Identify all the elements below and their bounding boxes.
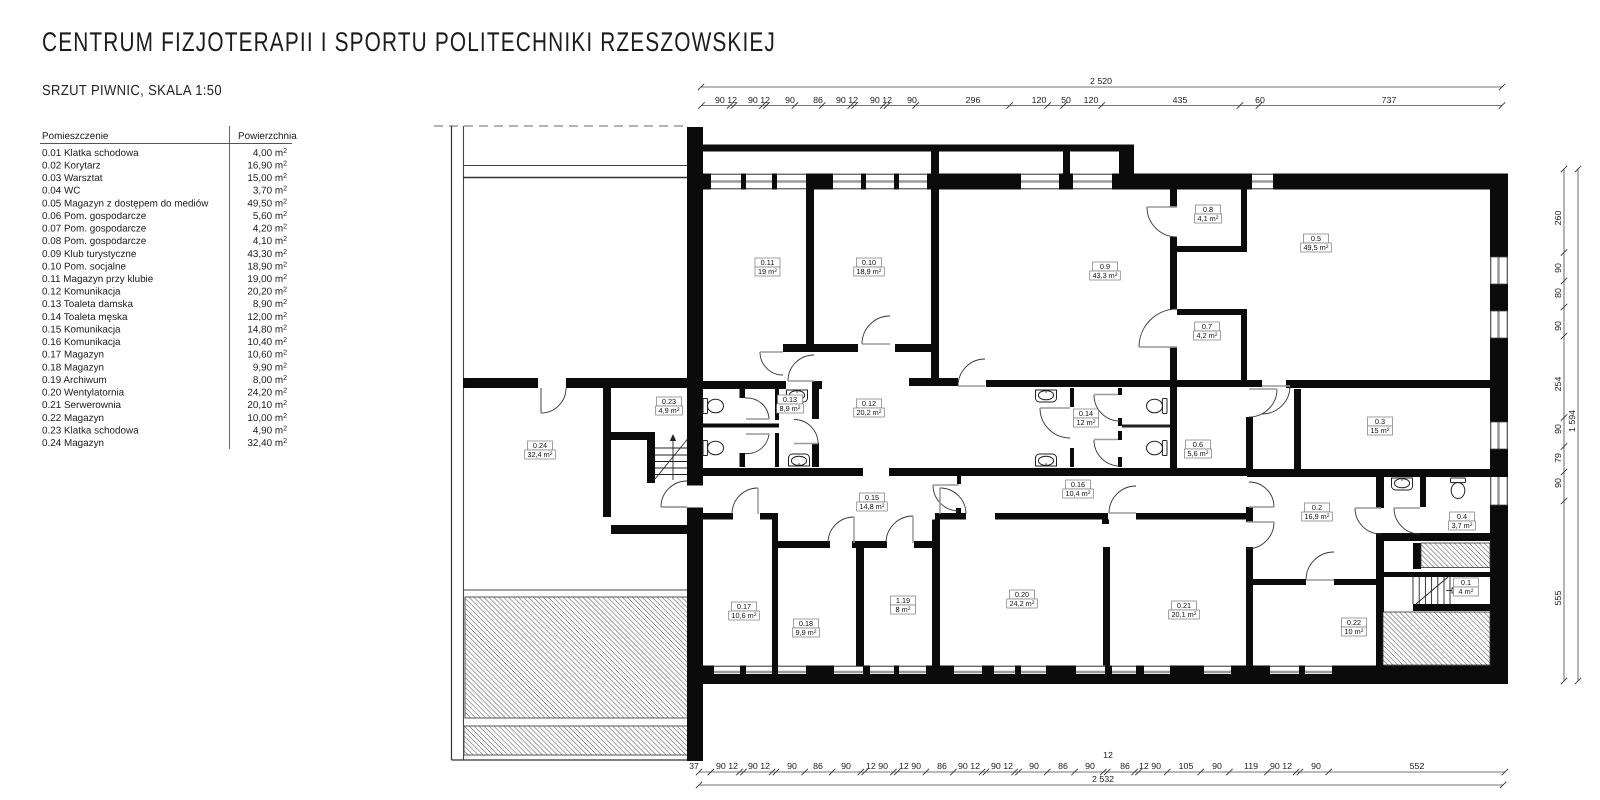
svg-text:10,4 m2: 10,4 m2 xyxy=(1065,489,1090,498)
svg-text:43,30 m2: 43,30 m2 xyxy=(247,249,287,260)
svg-text:0.12 Komunikacja: 0.12 Komunikacja xyxy=(42,287,121,298)
svg-text:CENTRUM FIZJOTERAPII I SPORTU: CENTRUM FIZJOTERAPII I SPORTU POLITECHNI… xyxy=(42,27,776,57)
svg-text:0.05 Magazyn z dostępem do med: 0.05 Magazyn z dostępem do mediów xyxy=(42,198,209,209)
svg-text:0.9: 0.9 xyxy=(1100,262,1110,271)
svg-text:32,4 m2: 32,4 m2 xyxy=(527,450,552,459)
svg-text:0.20 Wentylatornia: 0.20 Wentylatornia xyxy=(42,388,125,399)
svg-text:79: 79 xyxy=(1553,453,1563,463)
svg-text:90 12: 90 12 xyxy=(748,95,770,105)
svg-text:0.17 Magazyn: 0.17 Magazyn xyxy=(42,350,104,361)
svg-text:12 90: 12 90 xyxy=(899,761,921,771)
svg-text:0.01 Klatka schodowa: 0.01 Klatka schodowa xyxy=(42,148,139,159)
svg-text:14,8 m2: 14,8 m2 xyxy=(859,502,884,511)
svg-text:555: 555 xyxy=(1553,591,1563,606)
svg-text:105: 105 xyxy=(1179,761,1194,771)
svg-text:20,2 m2: 20,2 m2 xyxy=(856,408,881,417)
svg-text:8,00 m2: 8,00 m2 xyxy=(253,375,287,386)
svg-text:0.14 Toaleta męska: 0.14 Toaleta męska xyxy=(42,312,128,323)
svg-text:12: 12 xyxy=(1103,750,1113,760)
svg-text:0.20: 0.20 xyxy=(1015,590,1029,599)
svg-text:4,9 m2: 4,9 m2 xyxy=(658,406,679,415)
svg-text:1 594: 1 594 xyxy=(1567,410,1577,432)
svg-text:0.18: 0.18 xyxy=(799,619,813,628)
svg-text:90 12: 90 12 xyxy=(991,761,1013,771)
svg-text:0.08 Pom. gospodarcze: 0.08 Pom. gospodarcze xyxy=(42,236,147,247)
svg-text:90: 90 xyxy=(1553,263,1563,273)
svg-text:260: 260 xyxy=(1553,211,1563,226)
svg-text:14,80 m2: 14,80 m2 xyxy=(247,325,287,336)
svg-text:90: 90 xyxy=(907,95,917,105)
svg-text:5,60 m2: 5,60 m2 xyxy=(253,211,287,222)
svg-text:0.10: 0.10 xyxy=(862,258,876,267)
svg-text:20,1 m2: 20,1 m2 xyxy=(1171,610,1196,619)
svg-text:296: 296 xyxy=(966,95,981,105)
svg-text:16,90 m2: 16,90 m2 xyxy=(247,160,287,171)
svg-text:12 90: 12 90 xyxy=(866,761,888,771)
svg-text:90 12: 90 12 xyxy=(748,761,770,771)
svg-text:0.19 Archiwum: 0.19 Archiwum xyxy=(42,375,107,386)
svg-text:24,2 m2: 24,2 m2 xyxy=(1009,599,1034,608)
svg-text:0.06 Pom. gospodarcze: 0.06 Pom. gospodarcze xyxy=(42,211,147,222)
svg-text:0.21: 0.21 xyxy=(1177,601,1191,610)
svg-text:0.07 Pom. gospodarcze: 0.07 Pom. gospodarcze xyxy=(42,224,147,235)
svg-text:90: 90 xyxy=(1085,761,1095,771)
svg-text:0.22: 0.22 xyxy=(1347,618,1361,627)
svg-text:18,9 m2: 18,9 m2 xyxy=(856,267,881,276)
svg-text:0.12: 0.12 xyxy=(862,399,876,408)
svg-text:0.7: 0.7 xyxy=(1202,322,1212,331)
svg-text:10,00 m2: 10,00 m2 xyxy=(247,413,287,424)
svg-text:0.8: 0.8 xyxy=(1203,205,1213,214)
svg-text:90 12: 90 12 xyxy=(1270,761,1292,771)
svg-text:86: 86 xyxy=(937,761,947,771)
svg-text:0.03 Warsztat: 0.03 Warsztat xyxy=(42,173,103,184)
svg-text:4,10 m2: 4,10 m2 xyxy=(253,236,287,247)
svg-text:50: 50 xyxy=(1061,95,1071,105)
svg-text:0.6: 0.6 xyxy=(1193,440,1203,449)
svg-text:0.13: 0.13 xyxy=(783,395,797,404)
svg-text:90 12: 90 12 xyxy=(836,95,858,105)
svg-text:4,20 m2: 4,20 m2 xyxy=(253,224,287,235)
svg-text:0.02 Korytarz: 0.02 Korytarz xyxy=(42,160,101,171)
svg-text:0.16 Komunikacja: 0.16 Komunikacja xyxy=(42,337,121,348)
svg-text:86: 86 xyxy=(813,95,823,105)
svg-text:737: 737 xyxy=(1382,95,1397,105)
svg-text:0.04 WC: 0.04 WC xyxy=(42,186,80,197)
svg-text:90: 90 xyxy=(1212,761,1222,771)
svg-text:10,6 m2: 10,6 m2 xyxy=(731,611,756,620)
svg-text:0.14: 0.14 xyxy=(1079,409,1093,418)
svg-text:18,90 m2: 18,90 m2 xyxy=(247,261,287,272)
svg-text:12,00 m2: 12,00 m2 xyxy=(247,312,287,323)
svg-text:Powierzchnia: Powierzchnia xyxy=(238,131,297,142)
svg-text:10,60 m2: 10,60 m2 xyxy=(247,350,287,361)
svg-text:24,20 m2: 24,20 m2 xyxy=(247,388,287,399)
svg-text:0.3: 0.3 xyxy=(1375,417,1385,426)
svg-text:19,00 m2: 19,00 m2 xyxy=(247,274,287,285)
svg-text:0.21 Serwerownia: 0.21 Serwerownia xyxy=(42,400,122,411)
svg-text:4,00 m2: 4,00 m2 xyxy=(253,148,287,159)
svg-text:1.19: 1.19 xyxy=(896,596,910,605)
svg-text:2 520: 2 520 xyxy=(1090,76,1112,86)
svg-text:90: 90 xyxy=(1553,478,1563,488)
svg-text:90: 90 xyxy=(787,761,797,771)
svg-text:37: 37 xyxy=(689,761,699,771)
svg-text:120: 120 xyxy=(1032,95,1047,105)
svg-text:90 12: 90 12 xyxy=(958,761,980,771)
svg-text:80: 80 xyxy=(1553,288,1563,298)
svg-text:SRZUT PIWNIC, SKALA 1:50: SRZUT PIWNIC, SKALA 1:50 xyxy=(42,83,222,99)
svg-text:119: 119 xyxy=(1244,761,1258,771)
svg-text:0.22 Magazyn: 0.22 Magazyn xyxy=(42,413,104,424)
svg-text:120: 120 xyxy=(1084,95,1099,105)
svg-text:4,2 m2: 4,2 m2 xyxy=(1196,331,1217,340)
svg-text:5,6 m2: 5,6 m2 xyxy=(1187,449,1208,458)
svg-text:0.17: 0.17 xyxy=(737,602,751,611)
svg-text:90 12: 90 12 xyxy=(716,761,738,771)
svg-text:0.24 Magazyn: 0.24 Magazyn xyxy=(42,438,104,449)
svg-text:15,00 m2: 15,00 m2 xyxy=(247,173,287,184)
svg-text:90: 90 xyxy=(1553,321,1563,331)
svg-text:3,70 m2: 3,70 m2 xyxy=(253,186,287,197)
svg-text:90 12: 90 12 xyxy=(715,95,737,105)
svg-text:0.24: 0.24 xyxy=(533,441,547,450)
svg-text:9,90 m2: 9,90 m2 xyxy=(253,362,287,373)
svg-text:16,9 m2: 16,9 m2 xyxy=(1304,512,1329,521)
svg-text:0.15: 0.15 xyxy=(865,493,879,502)
svg-text:0.4: 0.4 xyxy=(1457,512,1467,521)
svg-text:0.10 Pom. socjalne: 0.10 Pom. socjalne xyxy=(42,261,126,272)
svg-text:2 532: 2 532 xyxy=(1092,774,1114,784)
svg-text:0.2: 0.2 xyxy=(1312,503,1322,512)
svg-text:90: 90 xyxy=(1311,761,1321,771)
svg-text:0.18 Magazyn: 0.18 Magazyn xyxy=(42,362,104,373)
svg-text:0.15 Komunikacja: 0.15 Komunikacja xyxy=(42,325,121,336)
svg-text:49,5 m2: 49,5 m2 xyxy=(1303,243,1328,252)
svg-text:0.11 Magazyn przy klubie: 0.11 Magazyn przy klubie xyxy=(42,274,154,285)
svg-text:0.1: 0.1 xyxy=(1461,578,1471,587)
svg-text:90: 90 xyxy=(841,761,851,771)
svg-text:0.09 Klub turystyczne: 0.09 Klub turystyczne xyxy=(42,249,137,260)
svg-text:9,9 m2: 9,9 m2 xyxy=(795,628,816,637)
svg-text:3,7 m2: 3,7 m2 xyxy=(1451,521,1472,530)
svg-text:90 12: 90 12 xyxy=(870,95,892,105)
svg-text:86: 86 xyxy=(1058,761,1068,771)
svg-text:254: 254 xyxy=(1553,377,1563,392)
svg-text:20,20 m2: 20,20 m2 xyxy=(247,287,287,298)
svg-text:20,10 m2: 20,10 m2 xyxy=(247,400,287,411)
svg-text:4,90 m2: 4,90 m2 xyxy=(253,425,287,436)
svg-text:90: 90 xyxy=(1029,761,1039,771)
svg-text:86: 86 xyxy=(1120,761,1130,771)
svg-text:8,90 m2: 8,90 m2 xyxy=(253,299,287,310)
svg-text:0.5: 0.5 xyxy=(1311,234,1321,243)
svg-text:4,1 m2: 4,1 m2 xyxy=(1197,214,1218,223)
svg-text:0.13 Toaleta damska: 0.13 Toaleta damska xyxy=(42,299,133,310)
svg-text:49,50 m2: 49,50 m2 xyxy=(247,198,287,209)
svg-text:0.16: 0.16 xyxy=(1071,480,1085,489)
svg-text:90: 90 xyxy=(785,95,795,105)
svg-text:0.23 Klatka schodowa: 0.23 Klatka schodowa xyxy=(42,425,139,436)
svg-text:90: 90 xyxy=(1553,424,1563,434)
svg-text:43,3 m2: 43,3 m2 xyxy=(1092,271,1117,280)
svg-text:Pomieszczenie: Pomieszczenie xyxy=(42,131,109,142)
svg-text:8,9 m2: 8,9 m2 xyxy=(779,404,800,413)
svg-text:435: 435 xyxy=(1173,95,1188,105)
svg-text:0.23: 0.23 xyxy=(662,397,676,406)
svg-text:32,40 m2: 32,40 m2 xyxy=(247,438,287,449)
svg-text:552: 552 xyxy=(1410,761,1425,771)
svg-text:60: 60 xyxy=(1255,95,1265,105)
svg-text:0.11: 0.11 xyxy=(761,258,775,267)
svg-text:86: 86 xyxy=(813,761,823,771)
svg-text:12 90: 12 90 xyxy=(1139,761,1161,771)
svg-text:10,40 m2: 10,40 m2 xyxy=(247,337,287,348)
